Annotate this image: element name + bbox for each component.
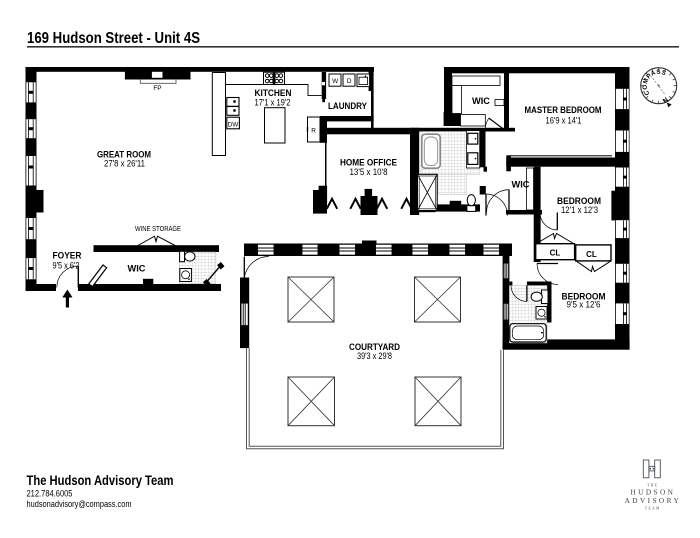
svg-text:WIC: WIC bbox=[128, 264, 146, 274]
svg-text:CL: CL bbox=[586, 250, 597, 259]
svg-text:9'5 x 6'2: 9'5 x 6'2 bbox=[53, 261, 80, 271]
svg-text:HOME OFFICE: HOME OFFICE bbox=[340, 158, 397, 168]
svg-text:12'1 x 12'3: 12'1 x 12'3 bbox=[561, 205, 598, 215]
svg-text:9'5 x 12'6: 9'5 x 12'6 bbox=[567, 300, 601, 310]
svg-text:DW: DW bbox=[228, 121, 240, 128]
svg-text:169 Hudson Street - Unit 4S: 169 Hudson Street - Unit 4S bbox=[27, 30, 200, 47]
svg-text:D: D bbox=[347, 78, 352, 85]
svg-text:ADVISORY: ADVISORY bbox=[625, 496, 682, 505]
svg-text:R: R bbox=[311, 128, 316, 135]
svg-text:WIC: WIC bbox=[472, 96, 490, 106]
svg-text:39'3 x 29'8: 39'3 x 29'8 bbox=[357, 351, 392, 361]
svg-text:FOYER: FOYER bbox=[53, 251, 82, 261]
svg-text:TEAM: TEAM bbox=[645, 506, 661, 510]
svg-text:HUDSON: HUDSON bbox=[630, 487, 675, 496]
svg-text:W: W bbox=[332, 78, 339, 85]
svg-text:27'8 x 26'11: 27'8 x 26'11 bbox=[104, 159, 145, 169]
svg-text:hudsonadvisory@compass.com: hudsonadvisory@compass.com bbox=[27, 499, 132, 509]
svg-text:17'1 x 19'2: 17'1 x 19'2 bbox=[255, 98, 291, 108]
svg-text:16'9 x 14'1: 16'9 x 14'1 bbox=[546, 116, 582, 126]
svg-text:CL: CL bbox=[550, 249, 561, 258]
svg-text:MASTER BEDROOM: MASTER BEDROOM bbox=[525, 105, 602, 115]
svg-text:The Hudson Advisory Team: The Hudson Advisory Team bbox=[27, 473, 174, 488]
svg-text:KITCHEN: KITCHEN bbox=[255, 88, 292, 98]
svg-text:WINE STORAGE: WINE STORAGE bbox=[135, 224, 181, 233]
svg-text:FP: FP bbox=[153, 85, 161, 92]
svg-text:212.784.6005: 212.784.6005 bbox=[27, 489, 73, 499]
svg-text:13'5 x 10'8: 13'5 x 10'8 bbox=[350, 167, 388, 177]
svg-text:LAUNDRY: LAUNDRY bbox=[328, 101, 368, 111]
svg-text:WIC: WIC bbox=[512, 180, 530, 190]
